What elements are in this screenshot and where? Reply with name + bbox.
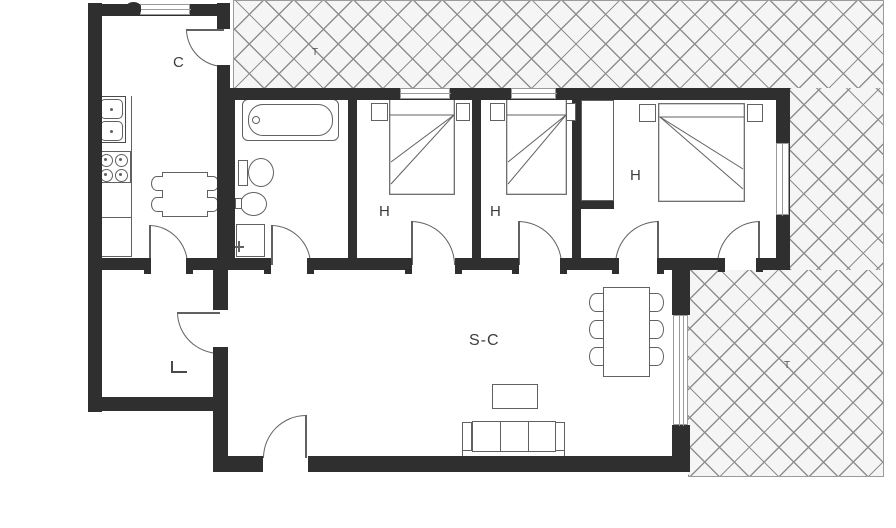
dining-chair [589,347,603,366]
terrace-edge-right [883,0,884,477]
terrace-top-area [233,0,884,88]
wall-band-seg6 [660,258,722,270]
door-stop [612,258,619,274]
terrace-edge-bottom [688,476,884,477]
door-stop [264,258,271,274]
wardrobe [581,100,614,201]
door-stop [144,258,151,274]
entrance-door-arc [263,415,306,458]
floor-plan: C H H H S-C T T [0,0,896,528]
terrace-right-lower-area [688,270,884,476]
hall-door-leaf [177,312,220,314]
kitchen-counter-edge [131,96,132,217]
nightstand [456,103,470,121]
bedroom3-window [776,143,789,215]
wall-kitchen-right-lower [217,65,230,98]
sofa-seat [472,421,556,452]
entrance-door-leaf [305,415,307,458]
terrace-top-label: T [312,48,318,58]
wall-left-outer [88,3,102,412]
wall-band-seg7 [760,258,790,270]
dining-table [603,287,650,377]
sofa-armrest [555,422,565,451]
burner-dot [119,158,122,161]
bathroom-door-leaf [271,225,273,265]
bedroom2-label: H [490,204,501,219]
door-stop [455,258,462,274]
dining-chair [650,347,664,366]
bathtub-drain [252,116,260,124]
kitchen-table [162,172,208,217]
bedroom2-door-arc [518,221,562,265]
nightstand [566,103,576,121]
wall-bedroom2-bedroom3 [572,98,581,268]
wall-living-bottom-left [221,456,263,472]
wall-band-seg1 [88,258,150,270]
bidet [240,192,267,216]
wall-living-bottom-right [308,456,690,472]
wall-hall-bottom [88,397,228,411]
dining-chair [589,293,603,312]
bathroom-door-arc [271,225,311,265]
door-stop [657,258,664,274]
sofa-cushion-divider [528,422,529,451]
bed-single-2 [506,98,567,195]
wall-artifact [126,2,141,12]
door-stop [307,258,314,274]
nightstand [371,103,388,121]
sink-drain [110,108,113,111]
bedroom2-window [511,88,556,99]
nightstand [747,104,763,122]
wall-kitchen-bathroom [217,95,235,258]
wall-bedroom1-bedroom2 [472,98,481,258]
toilet-bowl [248,158,274,187]
terrace-edge-left [233,0,234,88]
kitchen-door-arc [149,225,188,265]
terrace-right-upper-area [790,88,884,270]
door-stop [405,258,412,274]
door-stop [512,258,519,274]
living-dining-label: S-C [469,333,500,349]
wall-top-band [230,88,790,100]
dining-chair [589,320,603,339]
door-stop [560,258,567,274]
bedroom1-door-arc [411,221,455,265]
kitchen-terrace-door-arc [186,29,224,67]
kitchen-cabinet [98,217,132,257]
washbasin [236,224,265,257]
kitchen-chair [151,176,163,191]
door-stop [756,258,763,272]
burner-dot [119,173,122,176]
kitchen-label: C [173,55,184,70]
toilet-tank [238,160,248,186]
dining-chair [650,320,664,339]
wall-hall-living-upper [213,270,228,310]
kitchen-window [140,4,190,15]
bedroom3-label: H [630,168,641,183]
bed-double [658,103,745,202]
wall-band-seg3 [310,258,411,270]
wall-closet-stub [579,201,614,209]
dining-chair [650,293,664,312]
wall-band-seg2 [188,258,270,270]
corner-mark [171,361,187,373]
wall-living-right-upper [672,258,690,315]
kitchen-terrace-door-leaf [186,29,224,31]
bedroom1-label: H [379,204,390,219]
wall-band-seg4 [458,258,517,270]
sofa-cushion-divider [500,422,501,451]
washbasin-cross [238,241,240,252]
terrace-right-label: T [784,361,790,371]
burner-dot [104,158,107,161]
coffee-table [492,384,538,409]
bidet-stub [235,198,242,209]
bedroom3-door-arc [615,221,659,265]
bed-single-1 [389,98,455,195]
bedroom1-window [400,88,450,99]
wall-living-right-lower [672,425,690,472]
terrace-edge-top [233,0,884,1]
bathtub-basin [248,104,333,136]
wall-band-seg5 [563,258,617,270]
sink-drain [110,130,113,133]
nightstand [490,103,505,121]
wall-kitchen-right-upper [217,3,230,29]
nightstand [639,104,656,122]
living-room-window [673,315,688,425]
door-stop [186,258,193,274]
burner-dot [104,173,107,176]
door-stop [718,258,725,272]
wall-bathroom-bedroom1 [348,98,357,258]
kitchen-chair [151,197,163,212]
sofa-armrest [462,422,472,451]
